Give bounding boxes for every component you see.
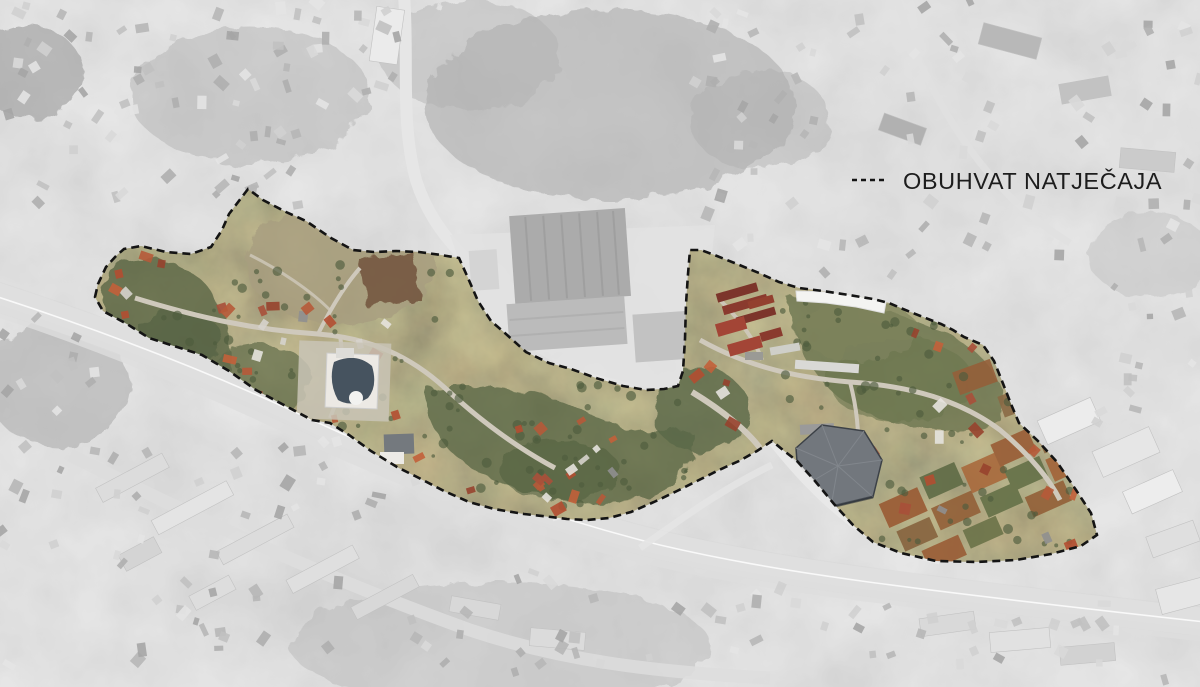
tree <box>576 381 584 389</box>
tree <box>780 308 786 314</box>
tree <box>786 395 794 403</box>
tree <box>585 404 591 410</box>
aerial-map: OBUHVAT NATJEČAJA <box>0 0 1200 687</box>
tree <box>576 500 583 507</box>
tree <box>626 485 631 490</box>
site-house <box>898 502 911 515</box>
tree <box>185 338 194 347</box>
tree <box>273 266 283 276</box>
tree <box>161 315 166 320</box>
tree <box>921 433 928 440</box>
site-house <box>121 311 130 320</box>
legend-label: OBUHVAT NATJEČAJA <box>903 167 1162 194</box>
tree <box>948 430 955 437</box>
tree <box>835 318 841 324</box>
tree <box>875 356 880 361</box>
tree <box>568 435 573 440</box>
tree <box>930 322 938 330</box>
tree <box>948 518 954 524</box>
tree <box>916 410 924 418</box>
tree <box>907 538 911 542</box>
tree <box>885 480 894 489</box>
tree <box>962 483 966 487</box>
tree <box>621 459 627 465</box>
tree <box>522 421 527 426</box>
tree <box>881 320 890 329</box>
tree <box>896 376 902 382</box>
tree <box>681 475 686 480</box>
tree <box>262 291 270 299</box>
tree <box>356 424 360 428</box>
tree <box>422 434 427 439</box>
tree <box>962 503 968 509</box>
tree <box>562 455 568 461</box>
tree <box>573 457 577 461</box>
tree <box>336 276 341 281</box>
tree <box>1033 511 1038 516</box>
tree <box>332 314 336 318</box>
tree <box>237 368 242 373</box>
tree <box>393 356 398 361</box>
tree <box>224 335 234 345</box>
tree <box>674 399 681 406</box>
dome-hall <box>297 340 392 421</box>
tree <box>526 466 534 474</box>
tree <box>532 435 541 444</box>
tree <box>824 382 829 387</box>
tree <box>338 284 344 290</box>
tree <box>626 391 636 401</box>
tree <box>281 303 288 310</box>
map-stage: OBUHVAT NATJEČAJA <box>0 0 1200 687</box>
tree <box>963 518 972 527</box>
tree <box>806 314 810 318</box>
tree <box>573 425 582 434</box>
tree <box>640 442 648 450</box>
tree <box>579 482 585 488</box>
site-house <box>242 368 252 375</box>
tree <box>439 439 449 449</box>
tree <box>1003 524 1013 534</box>
tree <box>427 269 435 277</box>
tree <box>332 329 337 334</box>
tree <box>400 359 404 363</box>
tree <box>915 538 921 544</box>
tree <box>803 341 809 347</box>
tree <box>897 486 906 495</box>
tree <box>549 487 556 494</box>
tree <box>236 315 240 319</box>
tree <box>335 260 345 270</box>
tree <box>595 465 600 470</box>
tree <box>254 371 258 375</box>
tree <box>254 269 259 274</box>
tree <box>431 316 438 323</box>
tree <box>594 381 602 389</box>
tree <box>650 432 656 438</box>
tree <box>172 311 182 321</box>
tree <box>620 478 628 486</box>
tree <box>946 383 952 389</box>
tree <box>960 440 964 444</box>
tree <box>445 402 453 410</box>
tree <box>250 376 257 383</box>
tree <box>978 488 986 496</box>
tree <box>482 458 492 468</box>
tree <box>456 408 460 412</box>
tree <box>289 368 293 372</box>
tree <box>884 427 889 432</box>
site-house <box>157 259 166 268</box>
tree <box>856 385 866 395</box>
site-house <box>935 430 944 443</box>
tree <box>819 405 824 410</box>
tree <box>213 341 217 345</box>
tree <box>598 482 604 488</box>
tree <box>212 309 216 313</box>
tree <box>232 279 238 285</box>
tree <box>614 385 620 391</box>
tree <box>896 391 901 396</box>
tree <box>446 269 454 277</box>
tree <box>870 382 879 391</box>
tree <box>494 480 499 485</box>
tree <box>431 389 438 396</box>
tree <box>909 386 917 394</box>
tree <box>889 324 893 328</box>
tree <box>879 536 886 543</box>
tree <box>1054 543 1058 547</box>
tree <box>258 279 263 284</box>
tree <box>1000 466 1007 473</box>
tree <box>238 283 247 292</box>
tree <box>802 328 807 333</box>
tree <box>1013 536 1021 544</box>
site-house <box>266 302 280 311</box>
tree <box>288 371 296 379</box>
tree <box>431 454 435 458</box>
tree <box>303 294 310 301</box>
tree <box>924 350 933 359</box>
tree <box>454 394 463 403</box>
tree <box>834 308 842 316</box>
tree <box>459 384 466 391</box>
tree <box>476 483 486 493</box>
tree <box>681 468 687 474</box>
tree <box>959 372 968 381</box>
tree <box>988 496 994 502</box>
tree <box>781 370 790 379</box>
tree <box>447 391 452 396</box>
tree <box>529 420 535 426</box>
tree <box>447 426 453 432</box>
